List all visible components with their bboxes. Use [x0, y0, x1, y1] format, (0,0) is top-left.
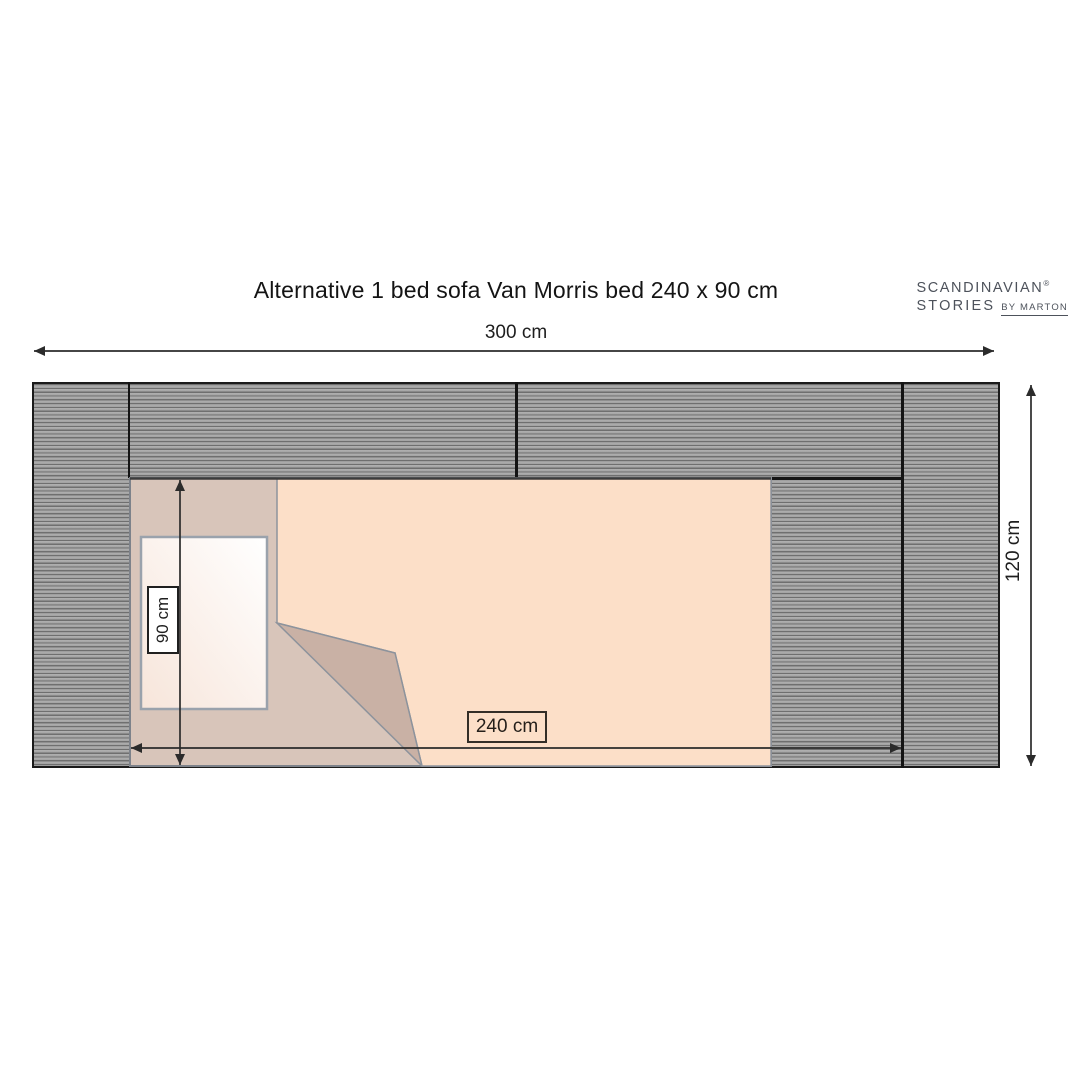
- total-depth-dimension-label: 120 cm: [994, 521, 1034, 581]
- bed-length-dimension-label: 240 cm: [467, 711, 547, 743]
- logo-second-line: STORIES BY MARTON: [916, 298, 1068, 316]
- backrest-divider-line: [515, 382, 518, 478]
- bed-length-dimension-text: 240 cm: [476, 716, 538, 738]
- total-depth-dimension-text: 120 cm: [1003, 520, 1025, 582]
- logo-brand-text: SCANDINAVIAN: [916, 280, 1043, 296]
- left-armrest-divider-line: [128, 382, 130, 478]
- logo-stories-text: STORIES: [916, 298, 995, 315]
- bed-width-dimension-text: 90 cm: [153, 597, 173, 643]
- total-width-dimension-label: 300 cm: [416, 322, 616, 344]
- diagram-title: Alternative 1 bed sofa Van Morris bed 24…: [186, 277, 846, 304]
- right-armrest-divider-line: [901, 382, 904, 768]
- logo-brand-name: SCANDINAVIAN®: [916, 279, 1068, 297]
- seat-edge-line: [772, 477, 903, 480]
- page: Alternative 1 bed sofa Van Morris bed 24…: [0, 0, 1080, 1080]
- logo-byline: BY MARTON: [1001, 303, 1068, 316]
- brand-logo: SCANDINAVIAN® STORIES BY MARTON: [916, 279, 1068, 316]
- bed-width-dimension-label: 90 cm: [147, 586, 179, 654]
- registered-trademark-symbol: ®: [1043, 279, 1049, 288]
- bed-area: [129, 477, 772, 767]
- bed-drawing: [129, 477, 772, 767]
